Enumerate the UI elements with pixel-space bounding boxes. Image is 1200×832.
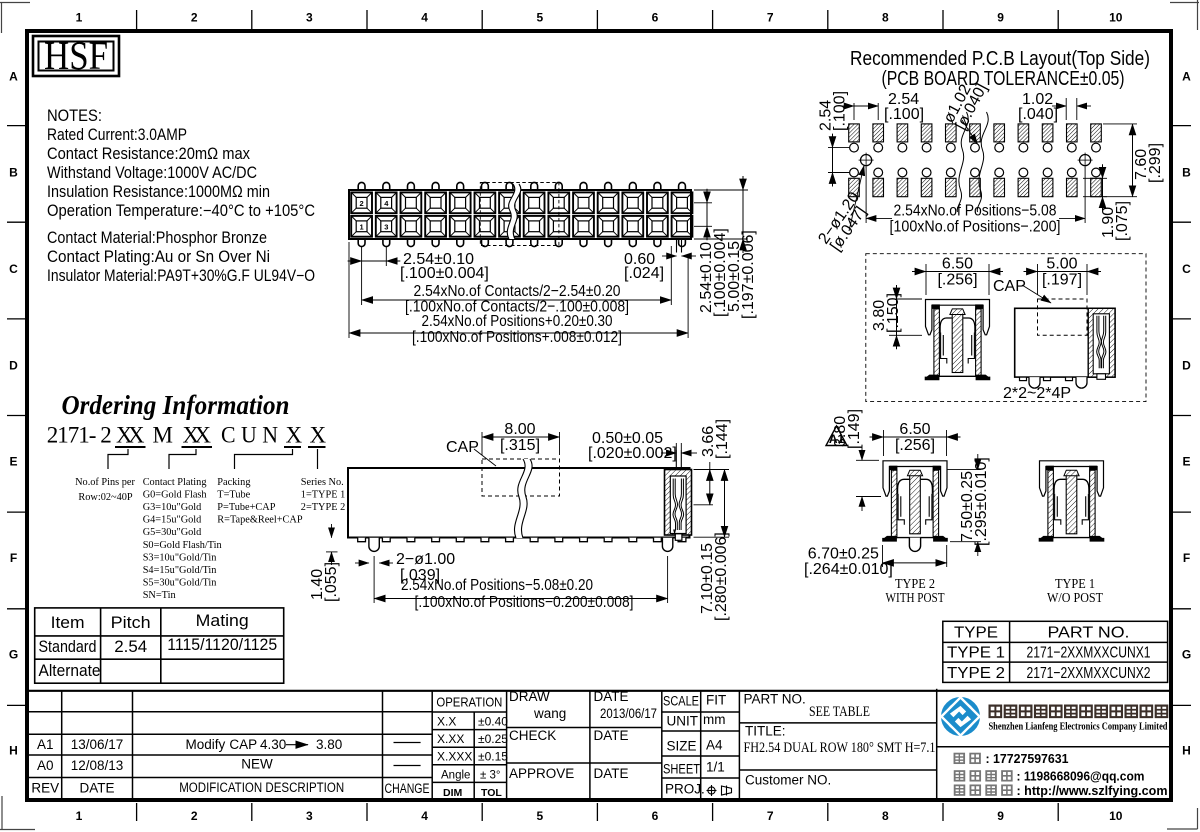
svg-text:Shenzhen Lianfeng Electronics: Shenzhen Lianfeng Electronics Company Li… <box>989 722 1168 733</box>
svg-text:Rated Current:3.0AMP: Rated Current:3.0AMP <box>47 126 187 144</box>
svg-text:6: 6 <box>652 11 659 25</box>
svg-text:TYPE 1: TYPE 1 <box>947 645 1005 662</box>
svg-text:H: H <box>1182 744 1191 758</box>
svg-text:UNIT: UNIT <box>667 714 699 729</box>
svg-text:A1: A1 <box>37 737 54 752</box>
svg-text:[.100]: [.100] <box>884 106 924 123</box>
svg-text:[.149]: [.149] <box>846 409 863 449</box>
svg-text:SN=Tin: SN=Tin <box>143 590 176 601</box>
svg-text:2: 2 <box>360 199 364 208</box>
svg-text:Modify: Modify <box>186 737 226 752</box>
svg-text:2−ø1.00: 2−ø1.00 <box>396 551 455 568</box>
svg-text:A4: A4 <box>706 738 723 753</box>
svg-text:±0.15: ±0.15 <box>478 750 508 764</box>
svg-text:1=TYPE 1: 1=TYPE 1 <box>301 490 345 501</box>
svg-text:TITLE:: TITLE: <box>745 724 786 739</box>
svg-text:[.150]: [.150] <box>885 293 902 333</box>
svg-text:Contact Resistance:20mΩ max: Contact Resistance:20mΩ max <box>47 145 251 163</box>
svg-text:3.80: 3.80 <box>316 737 342 752</box>
svg-text:TOL: TOL <box>481 787 502 799</box>
svg-text:SEE TABLE: SEE TABLE <box>809 704 870 720</box>
svg-text:[.075]: [.075] <box>1114 201 1131 241</box>
svg-text:8: 8 <box>882 809 889 823</box>
svg-text:[.256]: [.256] <box>895 437 935 454</box>
svg-text:1: 1 <box>76 809 83 823</box>
svg-text:S5=30u"Gold/Tin: S5=30u"Gold/Tin <box>143 577 217 588</box>
svg-text:[.100xNo.of Positions−0.200±0.: [.100xNo.of Positions−0.200±0.008] <box>415 594 634 611</box>
svg-text:[.100xNo.of Positions+.008±0.0: [.100xNo.of Positions+.008±0.012] <box>412 329 622 346</box>
svg-text:DATE: DATE <box>594 689 629 704</box>
svg-text:Contact Plating: Contact Plating <box>143 477 207 488</box>
svg-text:[.144]: [.144] <box>714 419 731 459</box>
svg-text:[.299]: [.299] <box>1147 143 1164 183</box>
svg-text:10: 10 <box>1109 11 1123 25</box>
svg-text:[100xNo.of Positions−.200]: [100xNo.of Positions−.200] <box>890 219 1061 236</box>
svg-text:2: 2 <box>191 809 198 823</box>
svg-text:5: 5 <box>536 809 543 823</box>
svg-text:XX: XX <box>183 423 212 448</box>
svg-text:2.54xNo.of Positions−5.08: 2.54xNo.of Positions−5.08 <box>894 203 1057 220</box>
svg-text:A1: A1 <box>829 432 845 446</box>
svg-text:mm: mm <box>703 712 726 727</box>
svg-text:G: G <box>1182 647 1191 661</box>
svg-text:1/1: 1/1 <box>706 760 725 775</box>
svg-text:TYPE: TYPE <box>954 625 998 642</box>
svg-text:E: E <box>1182 455 1190 469</box>
svg-text:CAP: CAP <box>993 278 1026 295</box>
svg-text:2013/06/17: 2013/06/17 <box>600 706 657 721</box>
svg-text:A0: A0 <box>37 758 54 773</box>
svg-text:G0=Gold Flash: G0=Gold Flash <box>143 490 208 501</box>
svg-text:1: 1 <box>360 223 364 232</box>
svg-text:MODIFICATION DESCRIPTION: MODIFICATION DESCRIPTION <box>179 780 344 795</box>
svg-text:[.020±0.002]: [.020±0.002] <box>588 445 677 462</box>
svg-text:10: 10 <box>1109 809 1123 823</box>
svg-text:Withstand Voltage:1000V AC/DC: Withstand Voltage:1000V AC/DC <box>47 164 257 182</box>
svg-text:Item: Item <box>51 613 85 632</box>
svg-text:CAP: CAP <box>229 737 257 752</box>
svg-text:Contact Material:Phosphor Bron: Contact Material:Phosphor Bronze <box>47 229 267 247</box>
svg-text:9: 9 <box>997 809 1004 823</box>
svg-text:C U N: C U N <box>221 423 278 448</box>
svg-text:FH2.54 DUAL ROW 180° SMT H=7.1: FH2.54 DUAL ROW 180° SMT H=7.1 <box>744 740 936 756</box>
svg-text:CHECK: CHECK <box>509 728 556 743</box>
svg-text:8: 8 <box>882 11 889 25</box>
svg-text:[.100]: [.100] <box>832 91 849 131</box>
svg-text:[.315]: [.315] <box>500 437 540 454</box>
svg-text:DATE: DATE <box>594 728 629 743</box>
svg-text:[.264±0.010]: [.264±0.010] <box>804 561 893 578</box>
svg-text:DIM: DIM <box>443 787 463 799</box>
svg-text:[.055]: [.055] <box>323 562 340 602</box>
svg-text:X.X: X.X <box>437 715 456 729</box>
svg-text:X.XXX: X.XXX <box>437 750 472 764</box>
svg-text:: 17727597631: : 17727597631 <box>986 751 1069 766</box>
svg-text:7: 7 <box>767 809 774 823</box>
svg-text:12/08/13: 12/08/13 <box>71 758 124 773</box>
svg-text:APPROVE: APPROVE <box>509 766 574 781</box>
svg-text:TYPE 2: TYPE 2 <box>947 665 1005 682</box>
svg-text:8.00: 8.00 <box>504 421 535 438</box>
svg-text:Contact Plating:Au or Sn Over: Contact Plating:Au or Sn Over Ni <box>47 248 270 266</box>
svg-text:Alternate: Alternate <box>39 661 101 680</box>
svg-text:2: 2 <box>191 11 198 25</box>
svg-text:D: D <box>9 358 18 372</box>
svg-text:5.00: 5.00 <box>1046 256 1077 273</box>
svg-text:DATE: DATE <box>594 766 629 781</box>
svg-text:SCALE: SCALE <box>663 694 699 709</box>
svg-text:[.024]: [.024] <box>624 265 664 282</box>
svg-text:CAP: CAP <box>446 439 479 456</box>
svg-text:B: B <box>9 166 18 180</box>
svg-text:CHANGE: CHANGE <box>385 781 430 796</box>
svg-text:SIZE: SIZE <box>667 739 697 754</box>
svg-text:No.of Pins per: No.of Pins per <box>75 477 135 488</box>
svg-text:M: M <box>153 423 173 448</box>
svg-text:3: 3 <box>384 223 388 232</box>
svg-text:Customer NO.: Customer NO. <box>745 773 831 788</box>
svg-text:Angle: Angle <box>441 769 470 781</box>
svg-text:X: X <box>286 423 303 448</box>
svg-text:1115/1120/1125: 1115/1120/1125 <box>167 635 277 654</box>
svg-text:C: C <box>1182 262 1191 276</box>
svg-text:: 1198668096@qq.com: : 1198668096@qq.com <box>1017 769 1145 784</box>
svg-text:6.50: 6.50 <box>899 421 930 438</box>
svg-text:W/O POST: W/O POST <box>1047 591 1103 606</box>
svg-text:2.54xNo.of Positions−5.08±0.20: 2.54xNo.of Positions−5.08±0.20 <box>401 577 593 594</box>
svg-text:WITH POST: WITH POST <box>886 591 945 606</box>
svg-text:FIT: FIT <box>706 693 726 708</box>
svg-text:D: D <box>1182 358 1191 372</box>
svg-text:T=Tube: T=Tube <box>217 490 250 501</box>
svg-text:2=TYPE 2: 2=TYPE 2 <box>301 502 345 513</box>
svg-text:Row:02~40P: Row:02~40P <box>78 492 132 503</box>
svg-text:4: 4 <box>421 809 428 823</box>
svg-text:Pitch: Pitch <box>111 613 151 632</box>
svg-text:PROJ.: PROJ. <box>665 782 705 797</box>
svg-text:G4=15u"Gold: G4=15u"Gold <box>143 515 202 526</box>
svg-text:A: A <box>1182 70 1191 84</box>
svg-text:1: 1 <box>76 11 83 25</box>
svg-text:F: F <box>1183 551 1190 565</box>
svg-text:REV: REV <box>31 781 59 796</box>
svg-text:S4=15u"Gold/Tin: S4=15u"Gold/Tin <box>143 565 217 576</box>
svg-text:B: B <box>1182 166 1191 180</box>
svg-text:[.295±0.010]: [.295±0.010] <box>973 457 990 546</box>
svg-text:6.50: 6.50 <box>942 256 973 273</box>
svg-text:H: H <box>9 744 18 758</box>
svg-text:P=Tube+CAP: P=Tube+CAP <box>217 502 275 513</box>
svg-text:Insulator Material:PA9T+30%G.F: Insulator Material:PA9T+30%G.F UL94V−O <box>47 267 315 285</box>
svg-text:DATE: DATE <box>79 781 114 796</box>
svg-text:Operation Temperature:−40°C to: Operation Temperature:−40°C to +105°C <box>47 202 315 220</box>
svg-text:5: 5 <box>536 11 543 25</box>
svg-text:DRAW: DRAW <box>509 689 550 704</box>
svg-text:2171- 2: 2171- 2 <box>47 423 112 448</box>
svg-text:2171−2XXMXXCUNX1: 2171−2XXMXXCUNX1 <box>1027 645 1151 662</box>
svg-text:NEW: NEW <box>241 757 273 772</box>
svg-text:G3=10u"Gold: G3=10u"Gold <box>143 502 202 513</box>
svg-text:OPERATION: OPERATION <box>436 696 502 710</box>
svg-text:± 3°: ± 3° <box>480 769 501 781</box>
svg-text:PART NO.: PART NO. <box>1048 625 1130 642</box>
svg-text:±0.25: ±0.25 <box>478 732 508 746</box>
svg-text:Series No.: Series No. <box>301 477 344 488</box>
svg-text:XX: XX <box>116 423 145 448</box>
svg-text:TYPE 2: TYPE 2 <box>895 577 935 592</box>
svg-text:3: 3 <box>306 809 313 823</box>
svg-text:A: A <box>9 70 18 84</box>
svg-text:S3=10u"Gold/Tin: S3=10u"Gold/Tin <box>143 552 217 563</box>
svg-text:F: F <box>10 551 17 565</box>
svg-text:NOTES:: NOTES: <box>47 107 102 125</box>
svg-text:Ordering Information: Ordering Information <box>62 390 290 420</box>
svg-text:X: X <box>310 423 327 448</box>
svg-text:2.54xNo.of Positions+0.20±0.30: 2.54xNo.of Positions+0.20±0.30 <box>422 313 613 330</box>
svg-text:[.040]: [.040] <box>1018 106 1058 123</box>
svg-text:2*2~2*4P: 2*2~2*4P <box>1003 385 1071 402</box>
svg-text:[.197±0.006]: [.197±0.006] <box>740 230 757 319</box>
svg-text:C: C <box>9 262 18 276</box>
svg-text:wang: wang <box>533 706 566 721</box>
svg-text:PART NO.: PART NO. <box>744 692 806 707</box>
svg-text:: http://www.szlfying.com: : http://www.szlfying.com <box>1017 783 1168 798</box>
svg-text:2171−2XXMXXCUNX2: 2171−2XXMXXCUNX2 <box>1027 665 1151 682</box>
svg-text:G: G <box>9 647 18 661</box>
svg-text:±0.40: ±0.40 <box>478 715 508 729</box>
svg-text:[.100±0.004]: [.100±0.004] <box>400 265 489 282</box>
svg-text:3: 3 <box>306 11 313 25</box>
svg-text:TYPE 1: TYPE 1 <box>1055 577 1095 592</box>
svg-text:[.256]: [.256] <box>937 272 977 289</box>
svg-text:SHEET: SHEET <box>663 762 700 777</box>
svg-text:4: 4 <box>421 11 428 25</box>
svg-text:9: 9 <box>997 11 1004 25</box>
svg-text:HSF: HSF <box>44 33 108 78</box>
svg-text:2.54xNo.of Contacts/2−2.54±0.2: 2.54xNo.of Contacts/2−2.54±0.20 <box>414 283 621 300</box>
svg-text:6.70±0.25: 6.70±0.25 <box>808 546 879 563</box>
svg-text:(PCB BOARD TOLERANCE±0.05): (PCB BOARD TOLERANCE±0.05) <box>882 67 1125 90</box>
svg-text:R=Tape&Reel+CAP: R=Tape&Reel+CAP <box>217 515 303 526</box>
svg-text:X.XX: X.XX <box>437 732 464 746</box>
svg-text:Mating: Mating <box>196 611 249 630</box>
svg-text:[.280±0.006]: [.280±0.006] <box>713 532 730 621</box>
svg-text:G5=30u"Gold: G5=30u"Gold <box>143 527 202 538</box>
svg-text:13/06/17: 13/06/17 <box>71 737 124 752</box>
svg-text:2.54: 2.54 <box>114 637 147 656</box>
svg-text:6: 6 <box>652 809 659 823</box>
svg-text:S0=Gold Flash/Tin: S0=Gold Flash/Tin <box>143 540 222 551</box>
svg-text:Insulation Resistance:1000MΩ m: Insulation Resistance:1000MΩ min <box>47 183 270 201</box>
svg-text:Packing: Packing <box>217 477 250 488</box>
svg-text:4.30: 4.30 <box>260 737 286 752</box>
svg-text:7: 7 <box>767 11 774 25</box>
svg-text:[.197]: [.197] <box>1042 272 1082 289</box>
svg-text:E: E <box>9 455 17 469</box>
svg-text:Standard: Standard <box>39 637 97 656</box>
